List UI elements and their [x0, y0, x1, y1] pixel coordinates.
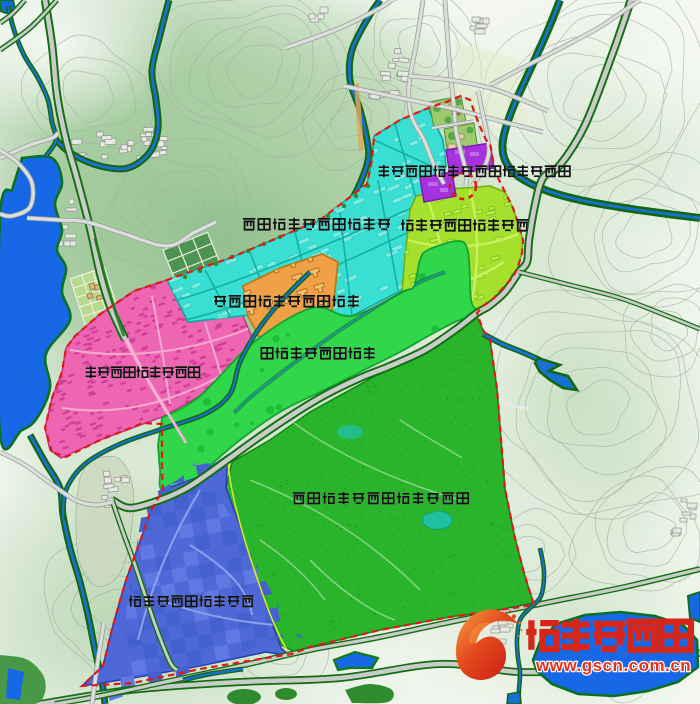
- svg-text:www.gscn.com.cn: www.gscn.com.cn: [535, 656, 691, 675]
